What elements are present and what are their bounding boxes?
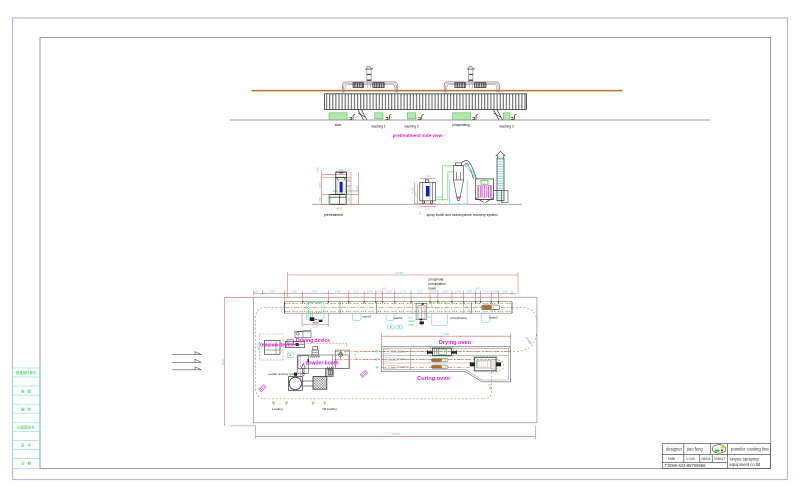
svg-text:600: 600 — [425, 206, 430, 210]
svg-text:7500: 7500 — [443, 332, 450, 336]
svg-text:1500: 1500 — [417, 289, 423, 293]
svg-text:1500: 1500 — [253, 289, 259, 293]
svg-text:washing 1: washing 1 — [371, 125, 386, 129]
svg-text:Drying oven: Drying oven — [439, 340, 472, 346]
svg-text:pretreatment side view: pretreatment side view — [393, 133, 443, 138]
svg-text:1:100: 1:100 — [686, 457, 695, 461]
svg-text:1350: 1350 — [318, 182, 322, 188]
svg-text:借通用件登记: 借通用件登记 — [16, 370, 37, 375]
svg-text:wash3: wash3 — [489, 315, 498, 319]
svg-text:precipitation: precipitation — [429, 282, 446, 286]
svg-text:1500: 1500 — [367, 289, 373, 293]
svg-text:Curing oven: Curing oven — [417, 376, 450, 382]
svg-text:450: 450 — [418, 210, 422, 215]
svg-text:skim: skim — [335, 123, 342, 127]
svg-text:designer: designer — [666, 447, 683, 452]
svg-text:描 图: 描 图 — [21, 388, 31, 393]
svg-text:1000: 1000 — [492, 289, 498, 293]
svg-text:1700: 1700 — [400, 289, 406, 293]
svg-text:3000: 3000 — [312, 289, 318, 293]
svg-text:550: 550 — [318, 197, 322, 202]
svg-text:1350: 1350 — [414, 192, 418, 198]
svg-text:phosphate: phosphate — [429, 277, 444, 281]
svg-text:1500: 1500 — [442, 289, 448, 293]
svg-text:jiao feng: jiao feng — [686, 447, 704, 452]
svg-text:1500: 1500 — [455, 289, 461, 293]
svg-text:Off-loading: Off-loading — [322, 407, 337, 411]
svg-text:wash1: wash1 — [363, 314, 372, 318]
svg-text:2150: 2150 — [355, 185, 359, 191]
svg-text:1900: 1900 — [411, 187, 415, 193]
svg-text:phosphating: phosphating — [452, 123, 470, 127]
svg-text:Loading: Loading — [272, 407, 283, 411]
svg-text:powder recovery system: powder recovery system — [268, 372, 298, 376]
svg-text:spray booth and monocyclone re: spray booth and monocyclone recovery sys… — [427, 213, 498, 217]
svg-text:23000: 23000 — [392, 432, 401, 436]
svg-text:日 期: 日 期 — [21, 461, 31, 466]
svg-text:washing 2: washing 2 — [404, 125, 419, 129]
svg-text:2250: 2250 — [269, 289, 275, 293]
svg-text:1450: 1450 — [335, 289, 341, 293]
svg-text:1750: 1750 — [466, 289, 472, 293]
svg-text:xinyue spraying: xinyue spraying — [730, 457, 760, 462]
svg-text:3500: 3500 — [312, 325, 319, 329]
svg-text:1250: 1250 — [347, 184, 351, 190]
svg-text:200: 200 — [347, 197, 351, 202]
svg-text:powder coating line: powder coating line — [731, 447, 769, 452]
svg-text:1000: 1000 — [386, 289, 392, 293]
svg-text:2250: 2250 — [316, 167, 320, 173]
svg-text:tank: tank — [409, 323, 415, 327]
svg-text:tower: tower — [429, 286, 438, 290]
svg-text:签 字: 签 字 — [21, 443, 31, 448]
svg-text:rate: rate — [668, 456, 676, 461]
svg-text:powder booth: powder booth — [305, 360, 338, 366]
svg-text:pretreatment: pretreatment — [324, 213, 343, 217]
svg-text:250: 250 — [347, 176, 351, 181]
svg-text:phosphating: phosphating — [450, 316, 467, 320]
svg-text:2000: 2000 — [425, 175, 431, 179]
svg-text:24250: 24250 — [395, 271, 404, 275]
svg-text:描 校: 描 校 — [21, 406, 31, 411]
svg-text:1700: 1700 — [291, 289, 297, 293]
svg-text:1500: 1500 — [502, 289, 508, 293]
svg-text:旧底图总号: 旧底图总号 — [17, 425, 35, 430]
svg-text:equipment co.ltd: equipment co.ltd — [730, 462, 761, 467]
svg-text:tension device: tension device — [260, 343, 295, 349]
svg-text:370: 370 — [347, 190, 351, 195]
svg-text:washing 3: washing 3 — [499, 125, 514, 129]
svg-text:06/04: 06/04 — [702, 457, 711, 461]
svg-text:2700: 2700 — [483, 289, 489, 293]
svg-text:wash2: wash2 — [394, 316, 403, 320]
svg-text:T:0086-523-88759666: T:0086-523-88759666 — [665, 463, 707, 468]
svg-text:1050: 1050 — [338, 168, 344, 172]
svg-text:600: 600 — [476, 286, 481, 290]
svg-text:skim: skim — [313, 321, 320, 325]
svg-text:Driving device: Driving device — [296, 338, 330, 344]
svg-text:005617: 005617 — [714, 457, 725, 461]
svg-text:5000: 5000 — [221, 358, 225, 365]
svg-text:1000: 1000 — [353, 289, 359, 293]
